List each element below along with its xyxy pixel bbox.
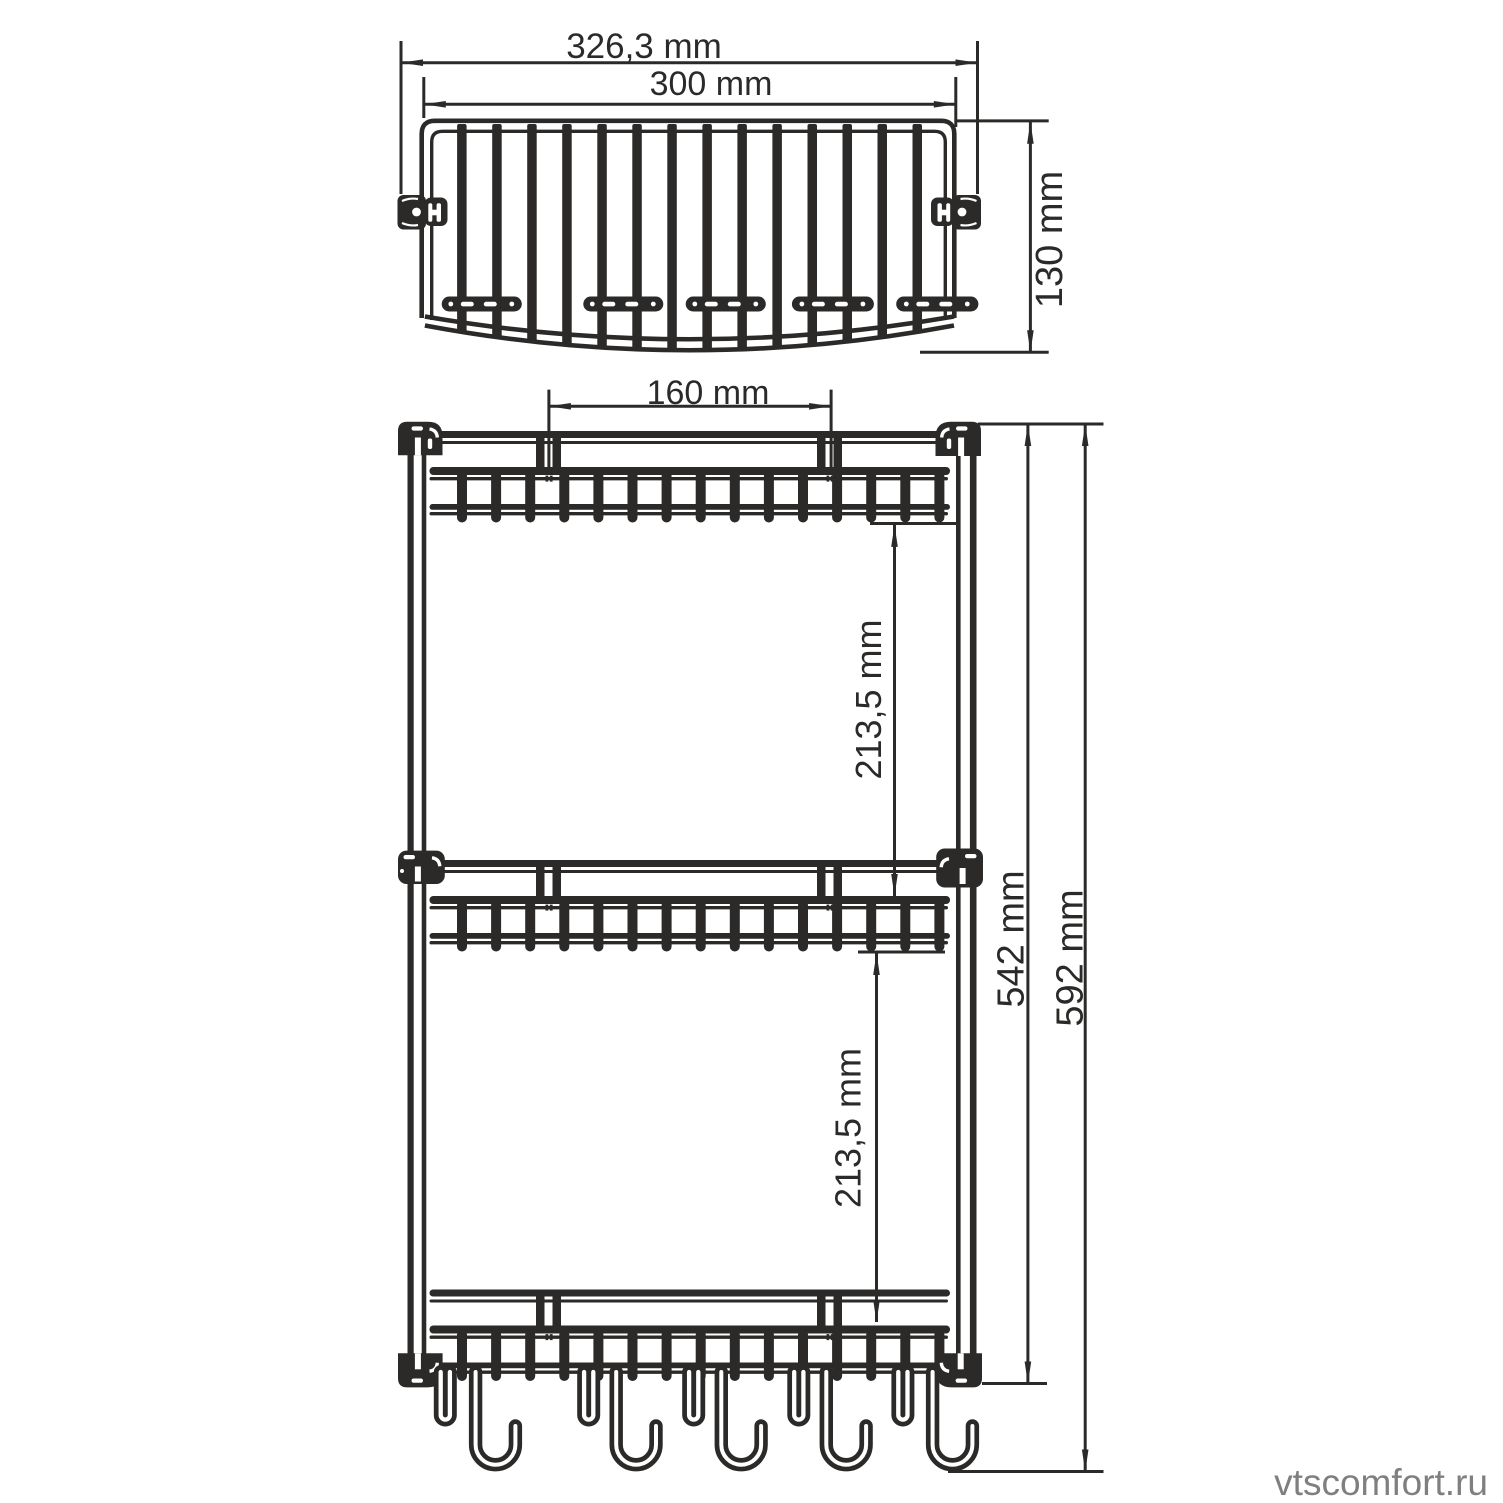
svg-text:542 mm: 542 mm: [991, 870, 1033, 1007]
svg-text:213,5 mm: 213,5 mm: [828, 1048, 869, 1208]
svg-text:vtscomfort.ru: vtscomfort.ru: [1274, 1462, 1488, 1503]
svg-text:326,3 mm: 326,3 mm: [566, 27, 722, 66]
svg-text:300 mm: 300 mm: [650, 65, 773, 103]
svg-text:213,5 mm: 213,5 mm: [848, 619, 889, 779]
svg-text:130 mm: 130 mm: [1029, 171, 1071, 308]
